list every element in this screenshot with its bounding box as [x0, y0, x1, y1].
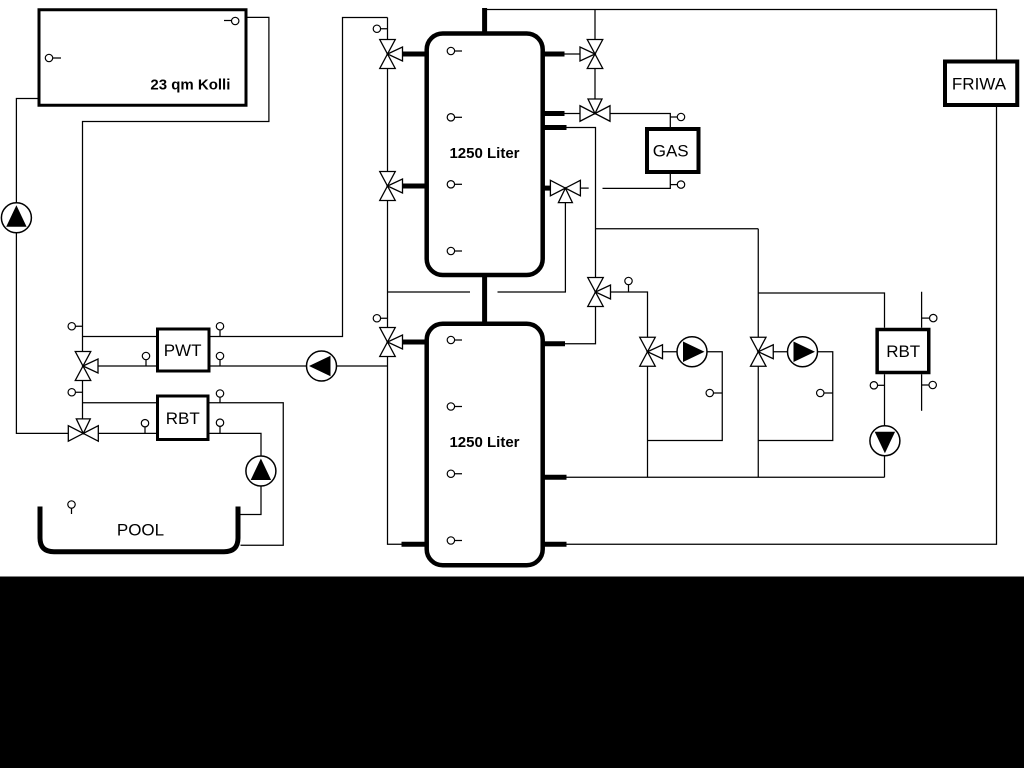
svg-text:RBT: RBT	[166, 409, 200, 428]
svg-text:GAS: GAS	[653, 142, 689, 161]
svg-text:PWT: PWT	[164, 341, 202, 360]
svg-text:RBT: RBT	[886, 342, 920, 361]
svg-text:23 qm Kolli: 23 qm Kolli	[150, 76, 230, 93]
svg-text:1250 Liter: 1250 Liter	[449, 434, 519, 451]
svg-text:POOL: POOL	[117, 521, 164, 540]
svg-text:1250 Liter: 1250 Liter	[449, 145, 519, 162]
svg-text:FRIWA: FRIWA	[952, 75, 1007, 94]
